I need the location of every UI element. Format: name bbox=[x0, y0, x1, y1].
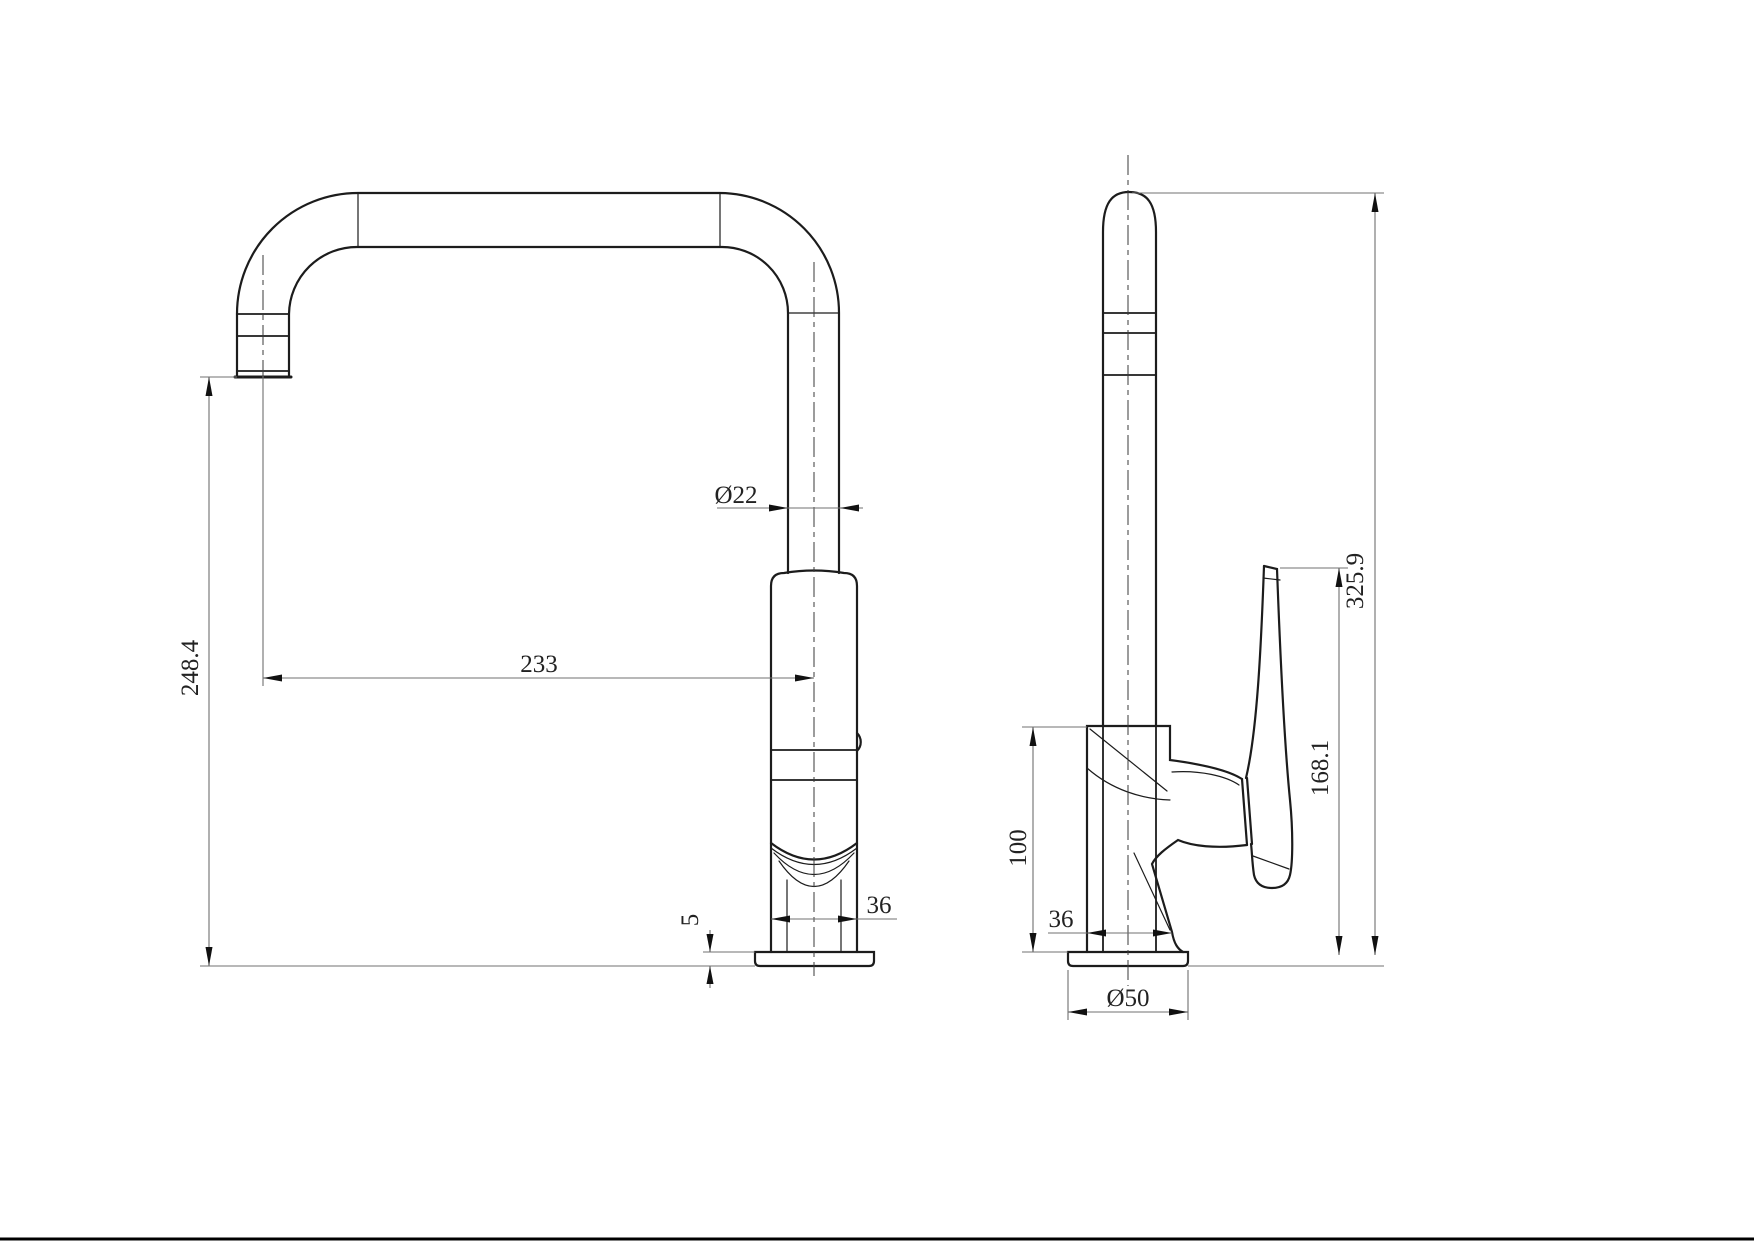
dim-total-height: 325.9 bbox=[1132, 193, 1384, 966]
front-spout-inner-path bbox=[289, 247, 788, 573]
side-tube-outline bbox=[1103, 192, 1156, 726]
dim-spout-height-label: 248.4 bbox=[177, 639, 204, 696]
dim-total-height-label: 325.9 bbox=[1342, 553, 1369, 609]
side-handle-bottom-detail bbox=[1253, 856, 1289, 869]
drawing-sheet: 248.4 233 Ø22 36 5 bbox=[0, 0, 1754, 1241]
front-spout-segment-ticks bbox=[358, 193, 839, 313]
dim-base-diameter-label: Ø50 bbox=[1106, 985, 1149, 1012]
side-handle-left-edge bbox=[1246, 566, 1264, 778]
side-dimensions: 100 36 Ø50 168.1 325.9 bbox=[1005, 193, 1384, 1020]
dim-base-thickness-label: 5 bbox=[677, 914, 704, 927]
dim-front-body-width-label: 36 bbox=[867, 892, 892, 919]
dim-side-body-width-label: 36 bbox=[1049, 906, 1074, 933]
dim-front-body-width: 36 bbox=[771, 892, 897, 923]
front-view bbox=[235, 193, 874, 976]
side-inner-pipe-lines bbox=[1103, 726, 1156, 952]
dim-body-height-label: 100 bbox=[1005, 829, 1032, 867]
dim-spout-height: 248.4 bbox=[177, 377, 237, 966]
dim-handle-height: 168.1 bbox=[1280, 568, 1348, 955]
dim-base-thickness: 5 bbox=[200, 914, 755, 988]
dim-pipe-diameter-label: Ø22 bbox=[714, 482, 757, 509]
dim-side-body-width: 36 bbox=[1048, 906, 1172, 937]
dim-body-height: 100 bbox=[1005, 727, 1087, 952]
side-handle-seam bbox=[1242, 778, 1252, 845]
dim-spout-reach: 233 bbox=[263, 376, 814, 686]
front-spout-outer-path bbox=[237, 193, 839, 573]
side-view bbox=[1068, 155, 1292, 986]
side-body-lower bbox=[1152, 840, 1247, 952]
side-tube-rings bbox=[1103, 313, 1156, 375]
dim-spout-reach-label: 233 bbox=[520, 651, 558, 678]
technical-drawing-canvas: 248.4 233 Ø22 36 5 bbox=[0, 0, 1754, 1241]
dim-handle-height-label: 168.1 bbox=[1307, 740, 1334, 796]
side-handle-lever bbox=[1251, 566, 1292, 888]
